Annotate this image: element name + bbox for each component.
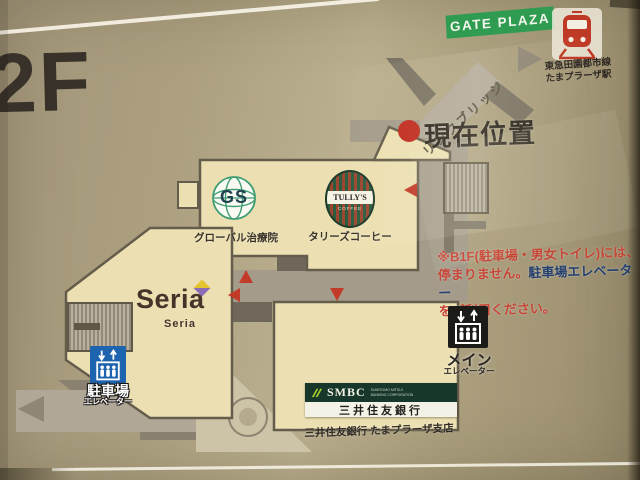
- global-clinic-initials: GS: [210, 187, 258, 208]
- floor-guide-photo: 2F GATE PLAZA 東急田園都市線 たまプラーザ駅 リンクブリッジ 現在…: [0, 0, 640, 480]
- arrow-gray-to-station-icon: [518, 46, 542, 72]
- tullys-name-band: TULLY'S: [325, 191, 375, 204]
- train-glyph-icon: [552, 8, 602, 60]
- global-clinic-logo: GS: [210, 174, 258, 222]
- tullys-name: TULLY'S: [333, 193, 367, 202]
- tullys-coffee-logo: TULLY'S COFFEE: [325, 170, 375, 228]
- seria-label: Seria: [148, 318, 212, 330]
- small-room: [178, 182, 198, 208]
- notice-line2: 停まりません。駐車場エレベーター: [438, 261, 640, 302]
- plaza-circle-inner: [239, 408, 257, 426]
- current-location-dot: [398, 120, 420, 142]
- current-location-label: 現在位置: [423, 111, 536, 154]
- smbc-mark-icon: [310, 386, 323, 399]
- global-clinic-label: グローバル治療院: [193, 230, 279, 245]
- train-station-icon: [552, 8, 602, 60]
- main-elevator-icon: [448, 306, 488, 348]
- parking-elevator-sublabel: エレベーター: [80, 396, 136, 407]
- smbc-logo-band: SMBC SUMITOMO MITSUI BANKING CORPORATION: [305, 383, 457, 402]
- corridor-main: [230, 270, 468, 302]
- wall-below-escalator: [444, 213, 454, 253]
- floor-label: 2F: [0, 33, 93, 133]
- smbc-subtitle: SUMITOMO MITSUI BANKING CORPORATION: [371, 388, 414, 396]
- escalator-right-icon: [444, 163, 488, 213]
- smbc-bank-name: 三井住友銀行: [339, 402, 423, 418]
- smbc-name: SMBC: [327, 385, 366, 400]
- smbc-bank-name-band: 三井住友銀行: [305, 402, 457, 417]
- tullys-sub-label: COFFEE: [327, 206, 373, 211]
- smbc-subtitle-line2: BANKING CORPORATION: [371, 393, 414, 397]
- elevator-pictogram-icon: [90, 346, 126, 384]
- wall-below-escalator-2: [454, 221, 486, 229]
- gate-plaza-label: GATE PLAZA: [450, 11, 551, 35]
- tullys-label: タリーズコーヒー: [308, 229, 392, 244]
- parking-elevator-icon: [90, 346, 126, 384]
- wall-left-of-bank: [232, 302, 272, 322]
- notice-line2-red: 停まりません。: [438, 265, 529, 282]
- smbc-sign: SMBC SUMITOMO MITSUI BANKING CORPORATION…: [305, 383, 457, 417]
- elevator-pictogram-icon: [448, 306, 488, 348]
- escalator-left-icon: [68, 303, 132, 351]
- bridge-wall-left: [386, 58, 436, 106]
- main-elevator-sublabel: エレベーター: [438, 365, 500, 377]
